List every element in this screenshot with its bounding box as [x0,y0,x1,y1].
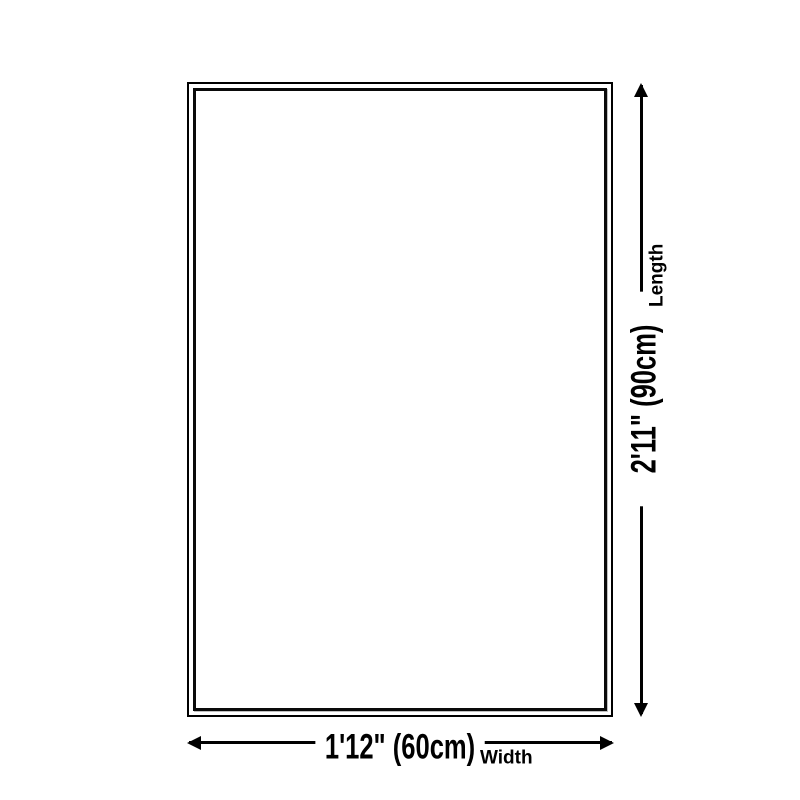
width-axis-label: Width [480,748,533,767]
arrow-left-icon [187,736,201,750]
length-axis-label: Length [647,244,666,307]
length-dimension-label: 2'11" (90cm) Length [627,252,662,546]
arrow-down-icon [634,703,648,717]
rug-size-diagram: 2'11" (90cm) Length 1'12" (60cm) Width [0,0,800,800]
rug-inner-border [193,88,607,711]
width-value: 1'12" (60cm) [315,730,484,765]
arrow-right-icon [600,736,614,750]
length-value: 2'11" (90cm) [627,292,662,507]
rug-outline [187,82,613,717]
arrow-up-icon [634,83,648,97]
width-dimension-label: 1'12" (60cm) Width [284,730,516,765]
